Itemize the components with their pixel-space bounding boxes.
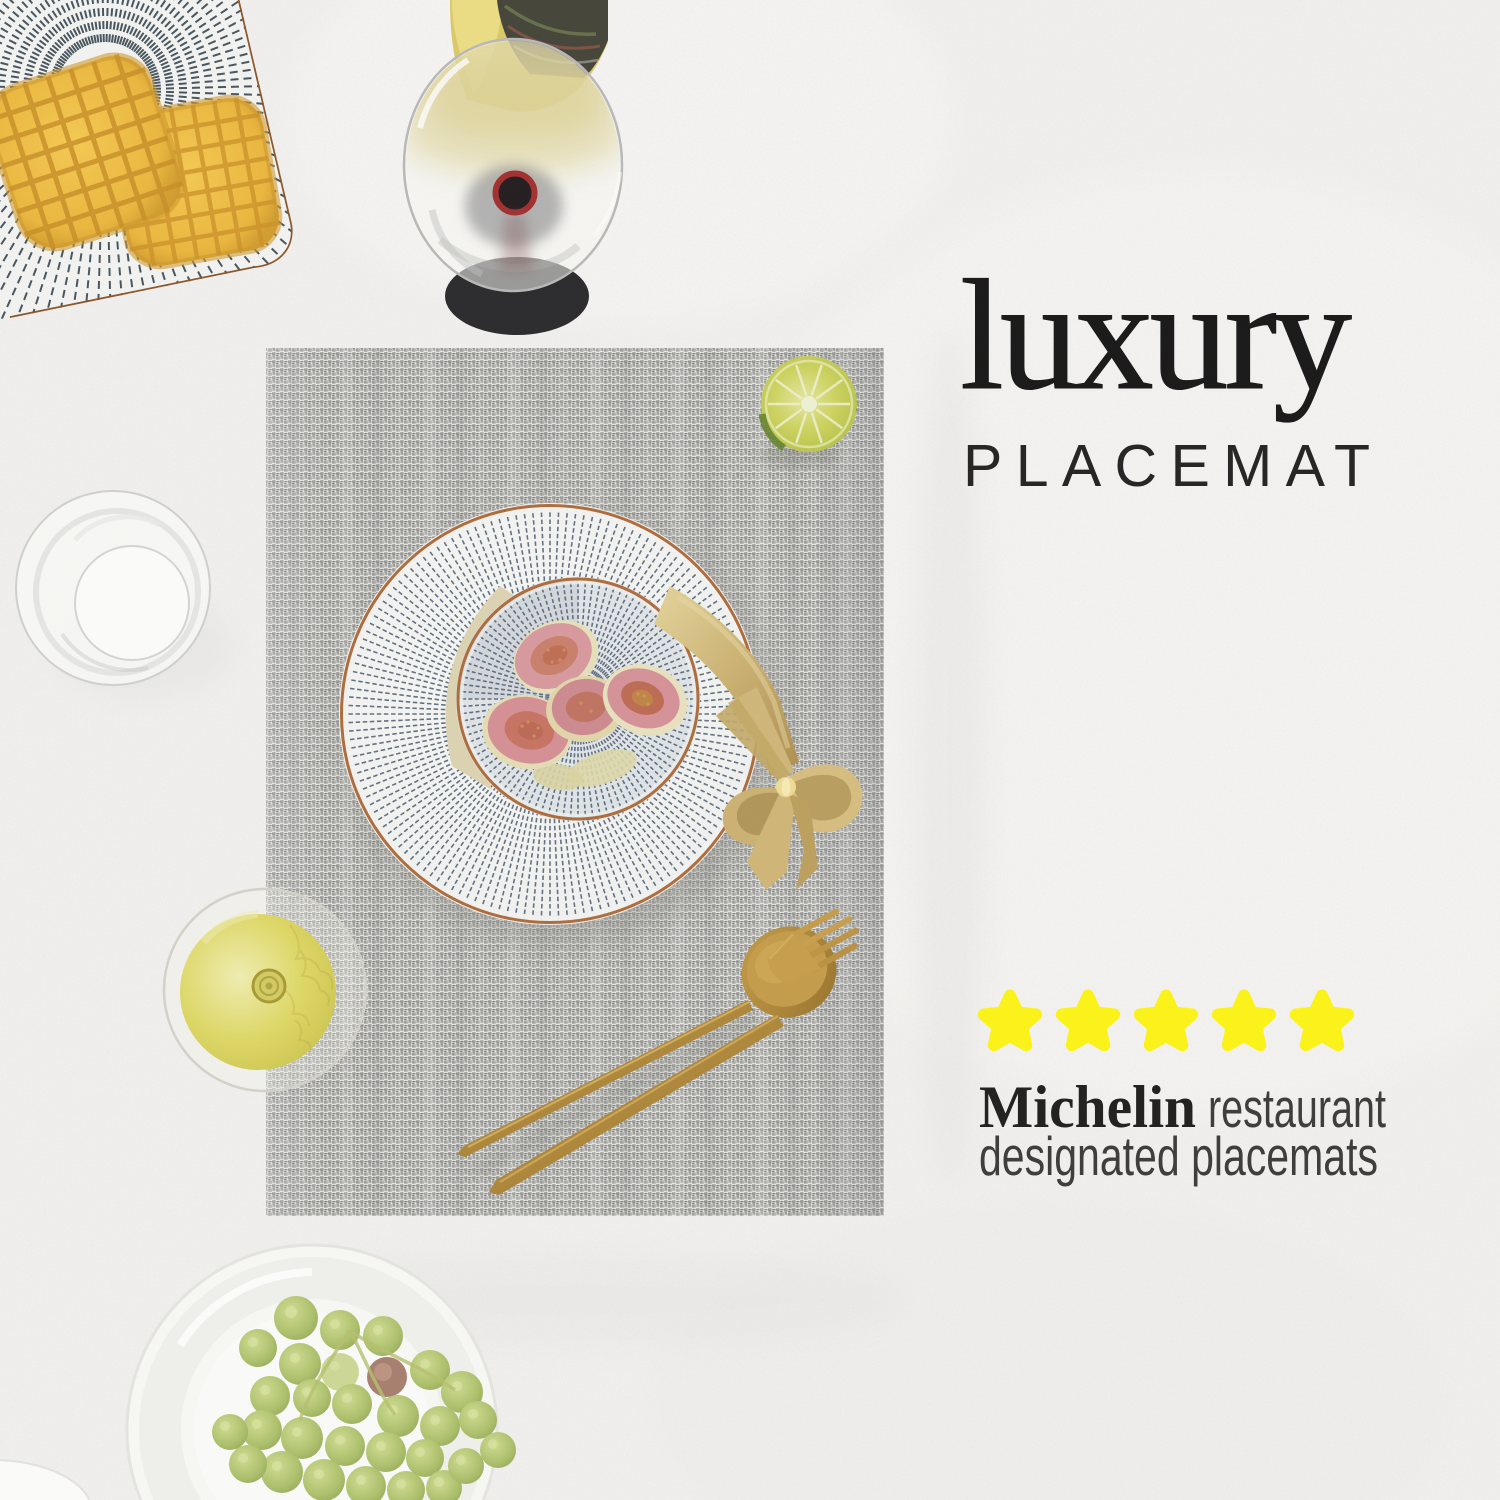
svg-text:luxury: luxury xyxy=(960,248,1352,423)
svg-text:designated placemats: designated placemats xyxy=(979,1125,1378,1187)
